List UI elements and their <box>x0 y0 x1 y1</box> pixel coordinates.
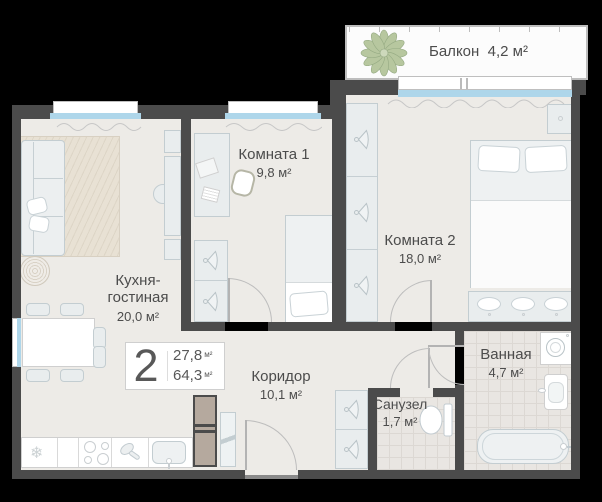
kitchen-label: Кухня- гостиная 20,0 м² <box>78 272 198 324</box>
bath-area: 4,7 м² <box>466 365 546 380</box>
dining-chair-6 <box>93 346 106 368</box>
room1-area: 9,8 м² <box>204 165 344 180</box>
hall-cabinet-shelf2 <box>195 430 215 433</box>
left-wall-window-glass <box>17 318 21 367</box>
wall-bottom-2 <box>298 470 580 479</box>
kitchen-area: 20,0 м² <box>78 309 198 324</box>
kitchen-shelf-bottom <box>164 239 181 260</box>
hanger-icon <box>354 275 371 297</box>
wall-south-3 <box>346 322 395 331</box>
washing-machine-knob <box>566 334 569 337</box>
room1-bed-pillow <box>289 290 329 317</box>
corridor-label: Коридор 10,1 м² <box>221 368 341 402</box>
wc-area: 1,7 м² <box>360 414 440 429</box>
badge-areas: 27,8м² 64,3м² <box>173 346 212 387</box>
wall-corridor-bath-2 <box>455 385 464 470</box>
counter-divider4 <box>148 438 149 467</box>
total-area-value: 64,3 <box>173 367 202 384</box>
corridor-name: Коридор <box>221 368 341 385</box>
stove-burner-4 <box>97 453 109 465</box>
room1-curtain-line <box>224 121 322 131</box>
dining-chair-1 <box>26 303 50 316</box>
mirror-icon <box>220 412 236 467</box>
room1-door-leaf <box>228 278 230 322</box>
wall-left-lower <box>12 367 21 479</box>
total-area-row: 64,3м² <box>173 366 212 386</box>
room-count: 2 <box>126 344 166 388</box>
kitchen-curtain-line <box>55 121 143 131</box>
room1-label: Комната 1 9,8 м² <box>204 146 344 180</box>
dining-chair-3 <box>26 369 50 382</box>
hanger-icon <box>203 291 220 313</box>
dresser-basin-1 <box>477 297 501 311</box>
room2-area: 18,0 м² <box>350 251 490 266</box>
wc-name: Санузел <box>360 396 440 412</box>
kitchen-name: Кухня- гостиная <box>78 272 198 307</box>
corridor-area: 10,1 м² <box>221 387 341 402</box>
stove-burner-2 <box>101 442 109 450</box>
bath-sink-handle <box>538 388 546 393</box>
room1-name: Комната 1 <box>204 146 344 163</box>
sofa-cushion-line1 <box>34 178 63 179</box>
bath-name: Ванная <box>466 346 546 363</box>
washing-machine-drum <box>550 342 561 353</box>
bath-label: Ванная 4,7 м² <box>466 346 546 380</box>
sink-tap-stem <box>168 463 170 469</box>
balcony-door-tick <box>460 78 462 89</box>
dresser-dot-3 <box>555 313 558 316</box>
round-rug <box>20 256 50 286</box>
balcony-area-value: 4,2 м² <box>488 43 528 60</box>
faucet-icon <box>117 440 143 464</box>
stove-burner-1 <box>84 441 96 453</box>
wall-south-2 <box>268 322 346 331</box>
wall-bottom-1 <box>12 470 245 479</box>
sofa-pillow2 <box>28 214 50 233</box>
room2-label: Комната 2 18,0 м² <box>350 232 490 266</box>
dining-chair-4 <box>60 369 84 382</box>
stove-burner-3 <box>84 456 92 464</box>
entrance-door-leaf <box>245 420 247 470</box>
wall-right <box>571 95 580 479</box>
bathtub-faucet <box>560 443 567 450</box>
hanger-icon <box>344 399 361 421</box>
entrance-sill <box>245 475 298 479</box>
hanger-icon <box>203 250 220 272</box>
floor-plan: Балкон 4,2 м² <box>0 0 602 502</box>
dresser-dot-1 <box>488 313 491 316</box>
balcony-door-tick2 <box>466 78 468 89</box>
room2-wardrobe-divider1 <box>347 176 377 177</box>
wall-room1-room2 <box>332 95 346 330</box>
dresser-basin-2 <box>511 297 535 311</box>
room2-bed-pillow2 <box>524 145 567 173</box>
wall-top-b2 <box>572 80 586 95</box>
room2-name: Комната 2 <box>350 232 490 249</box>
hall-wardrobe-divider <box>336 429 367 430</box>
dresser-basin-3 <box>544 297 568 311</box>
wall-corridor-bath-1 <box>455 331 464 345</box>
total-area-unit: м² <box>204 370 212 379</box>
tv-stand <box>164 156 181 236</box>
kitchen-shelf-top <box>164 130 181 153</box>
wall-south-4 <box>432 322 571 331</box>
wc-label: Санузел 1,7 м² <box>360 396 440 429</box>
room2-bed-pillow1 <box>477 145 520 173</box>
balcony-label: Балкон 4,2 м² <box>429 43 584 60</box>
nightstand-knob <box>558 116 563 121</box>
fridge-icon: ❄ <box>30 443 43 463</box>
balcony-name: Балкон <box>429 43 479 60</box>
room2-window <box>398 76 572 90</box>
room1-wardrobe-divider <box>195 280 227 281</box>
counter-divider3 <box>111 438 112 467</box>
apartment-badge: 2 27,8м² 64,3м² <box>125 342 225 390</box>
counter-divider2 <box>78 438 79 467</box>
room2-curtain-line <box>386 98 572 108</box>
hanger-icon <box>354 202 371 224</box>
bathtub-inner <box>482 433 564 460</box>
bath-sink-basin <box>548 382 564 403</box>
counter-divider1 <box>57 438 58 467</box>
wall-top-b1 <box>330 80 398 95</box>
living-area-value: 27,8 <box>173 347 202 364</box>
living-area-row: 27,8м² <box>173 346 212 366</box>
kitchen-window-glass <box>50 113 141 119</box>
hall-cabinet-shelf1 <box>195 424 215 427</box>
wall-top-a1 <box>12 105 53 119</box>
dresser-dot-2 <box>522 313 525 316</box>
bath-door-leaf <box>428 345 464 347</box>
room2-window-glass <box>398 90 572 97</box>
hanger-icon <box>354 129 371 151</box>
living-area-unit: м² <box>204 350 212 359</box>
badge-divider <box>167 351 168 381</box>
room1-window-glass <box>225 113 321 119</box>
plant-icon <box>360 29 408 77</box>
dining-table <box>22 318 95 367</box>
room2-door-leaf <box>430 280 432 322</box>
wall-left-upper <box>12 105 21 318</box>
hanger-icon <box>344 439 361 461</box>
